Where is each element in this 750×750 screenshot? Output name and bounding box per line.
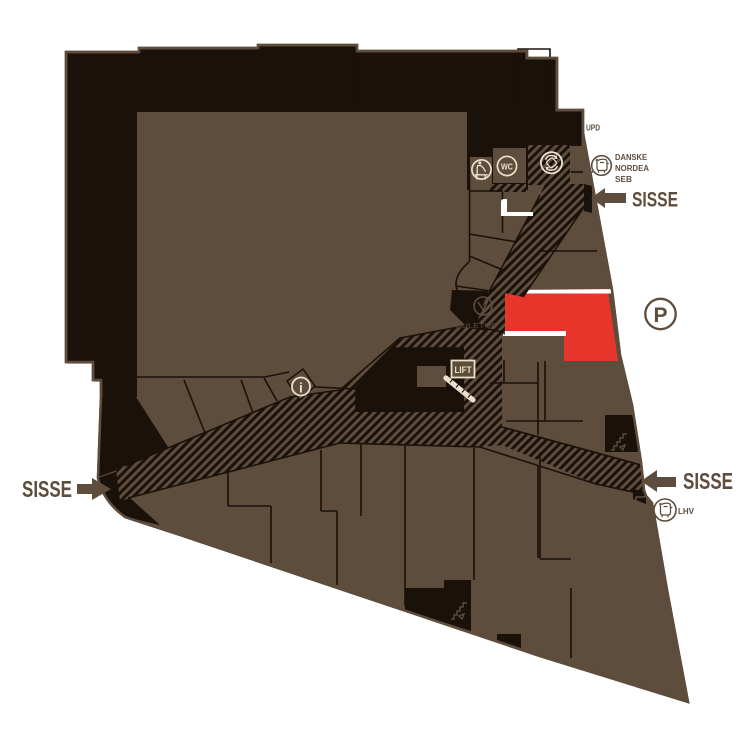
svg-text:NORDEA: NORDEA [615, 164, 649, 173]
svg-text:SEB: SEB [615, 175, 632, 184]
svg-text:LHV: LHV [678, 506, 694, 516]
svg-text:P: P [653, 304, 667, 327]
svg-text:UPD: UPD [586, 124, 600, 133]
svg-text:SISSE: SISSE [683, 468, 733, 494]
svg-text:WC: WC [501, 162, 513, 172]
svg-text:DANSKE: DANSKE [615, 153, 648, 162]
svg-text:SULETUD: SULETUD [456, 323, 498, 330]
svg-text:SISSE: SISSE [632, 189, 678, 212]
svg-text:i: i [299, 380, 303, 396]
svg-text:LIFT: LIFT [455, 365, 472, 375]
svg-text:SISSE: SISSE [22, 476, 72, 502]
